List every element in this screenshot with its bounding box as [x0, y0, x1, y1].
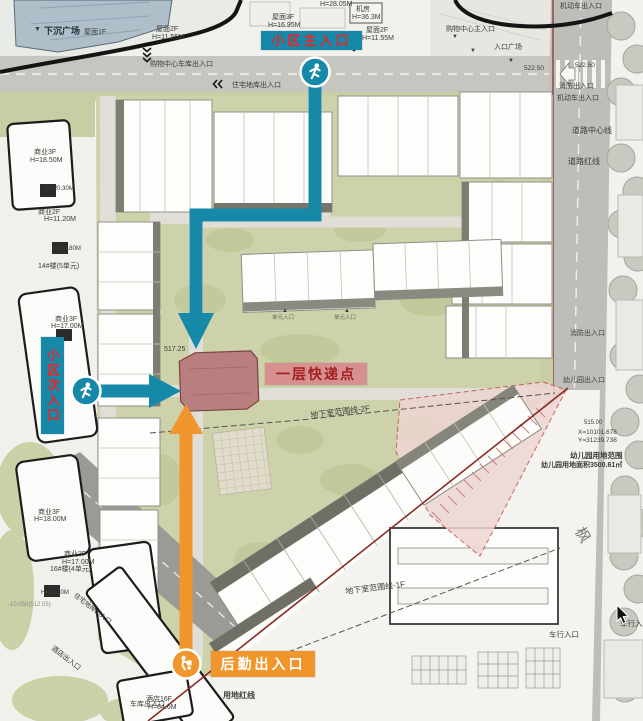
secondary-entrance-label: 小区次入口 [41, 337, 64, 434]
express-point-label: 一层快递点 [265, 363, 367, 385]
express-point-building [179, 351, 259, 412]
main-entrance-label: 小区主入口 [261, 31, 362, 50]
site-plan-map: H=28.05M屋面3FH=16.95M机房H=36.3M屋面2FH=11.55… [0, 0, 643, 721]
logistics-entrance-label: 后勤出入口 [211, 651, 315, 677]
paved-plaza [212, 427, 271, 495]
west-buildings [98, 222, 160, 590]
map-base [0, 0, 643, 721]
